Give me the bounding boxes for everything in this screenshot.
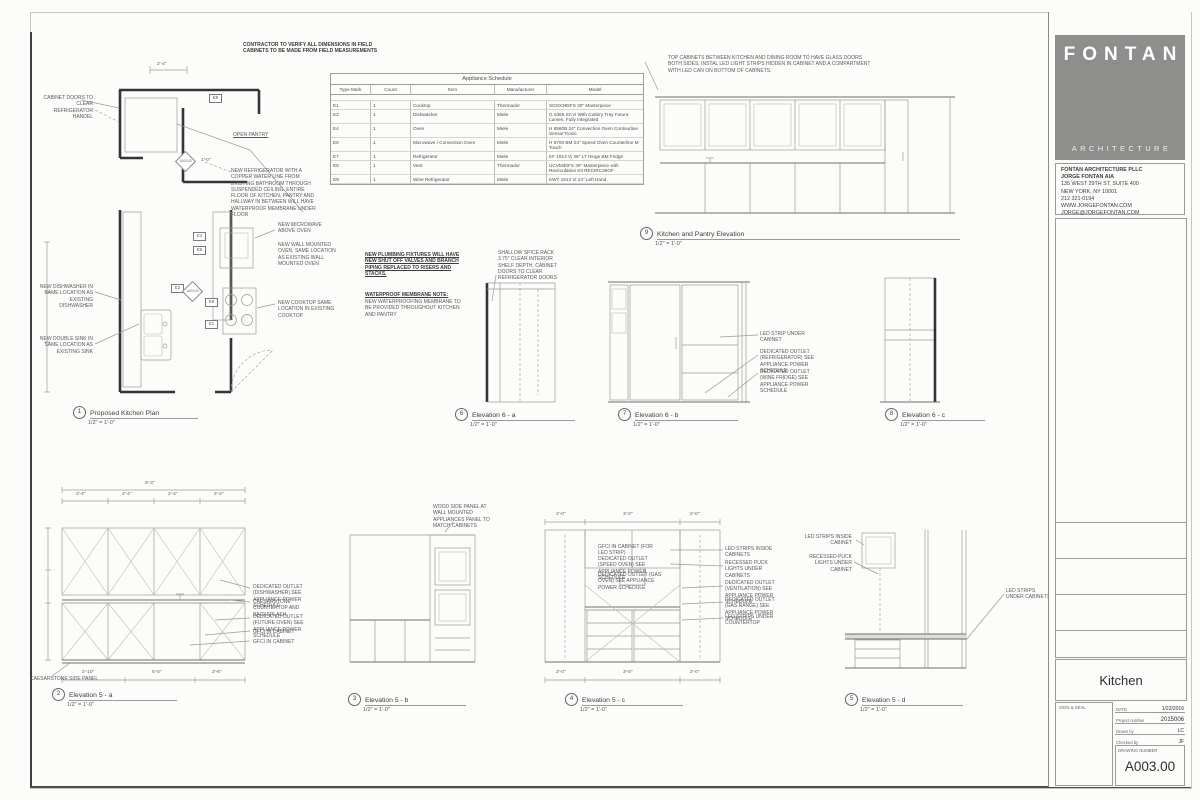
schedule-cell: KF 1913 Vi 36" LT Hinge BM Fridge xyxy=(547,152,643,161)
note-gfci-led: GFCI IN CABINET (FOR LED STRIP) xyxy=(598,544,662,557)
appliance-schedule: Appliance Schedule Type Mark Count Item … xyxy=(330,73,644,185)
schedule-cell: Microwave / Convection Oven xyxy=(411,138,495,152)
dim-bottom: 2'-6" xyxy=(212,670,222,675)
note-outlet-wine: DEDICATED OUTLET (WINE FRIDGE) SEE APPLI… xyxy=(760,369,822,394)
elevation-6c-drawing xyxy=(870,245,995,425)
cooktop-plan xyxy=(223,288,256,334)
schedule-row: E81VentThermadorUCVM30FS 30" Masterpiece… xyxy=(331,161,643,175)
pantry-door xyxy=(885,100,908,213)
schedule-cell: Wine Refrigerator xyxy=(411,175,495,184)
note-gfci-cabinet: GFCI IN CABINET xyxy=(253,639,309,645)
viewport-number: 9 xyxy=(640,227,653,240)
viewport-scale: 1/2" = 1'-0" xyxy=(633,422,738,428)
viewport-elevation-6b: LED STRIP UNDER CABINET DEDICATED OUTLET… xyxy=(600,245,830,430)
note-wood-side-panel: WOOD SIDE PANEL AT WALL MOUNTED APPLIANC… xyxy=(433,504,497,529)
text-line: 135 WEST 29TH ST, SUITE 400 xyxy=(1061,181,1184,188)
schedule-cell: Miele xyxy=(495,175,547,184)
viewport-number: 2 xyxy=(52,688,65,701)
field-project-number: Project number 2015006 xyxy=(1115,713,1185,724)
note-dishwasher: NEW DISHWASHER IN SAME LOCATION AS EXIST… xyxy=(35,284,93,309)
dim-bottom: 3'-0" xyxy=(623,670,633,675)
viewport-elevation-5d: LED STRIPS INSIDE CABINET RECESSED PUCK … xyxy=(790,490,1070,715)
project-number-label: Project number xyxy=(1116,718,1144,723)
revision-divider xyxy=(1056,522,1186,523)
schedule-row: E61Microwave / Convection OvenMieleH 670… xyxy=(331,138,643,152)
viewport-title: Kitchen and Pantry Elevation xyxy=(657,231,960,240)
viewport-title: Elevation 6 - c xyxy=(902,412,985,421)
field-date: DATE 1/22/2016 xyxy=(1115,702,1185,713)
firm-contact-info: FONTAN ARCHITECTURE PLLCJORGE FONTAN AIA… xyxy=(1055,163,1185,215)
dim-bottom: 2'-0" xyxy=(556,670,566,675)
viewport-scale: 1/2" = 1'-0" xyxy=(580,707,683,713)
revision-divider xyxy=(1056,630,1186,631)
dim-bottom: 2'-10" xyxy=(82,670,94,675)
viewport-elevation-5b: WOOD SIDE PANEL AT WALL MOUNTED APPLIANC… xyxy=(335,490,500,715)
schedule-cell: Cooktop xyxy=(411,101,495,110)
upper-cabinet xyxy=(862,533,895,568)
viewport-elevation-6a: SHALLOW SPICE RACK 3.75" CLEAR INTERIOR … xyxy=(450,245,590,430)
schedule-cell: 1 xyxy=(371,161,411,175)
pantry-elevation-drawing xyxy=(640,80,970,230)
schedule-cell: 1 xyxy=(371,110,411,124)
dim-top: 2'-0" xyxy=(690,512,700,517)
dim-bottom: 2'-0" xyxy=(690,670,700,675)
schedule-cell: H 6560B 24" Convection Oven Contourline … xyxy=(547,124,643,138)
drawing-number-label: DRAWING NUMBER xyxy=(1116,746,1184,753)
schedule-cell: 1 xyxy=(371,138,411,152)
field-drawn-by: Drawn by LC xyxy=(1115,724,1185,735)
speed-oven-elevation xyxy=(435,590,470,625)
tag-e4: E4 xyxy=(193,232,206,241)
viewport-number: 5 xyxy=(845,693,858,706)
note-led-inside: LED STRIPS INSIDE CABINETS xyxy=(725,546,780,559)
drawing-number-value: A003.00 xyxy=(1116,759,1184,774)
schedule-cell: 1 xyxy=(371,152,411,161)
viewport-scale: 1/2" = 1'-0" xyxy=(88,420,198,426)
note-outlet-future-oven: DEDICATED OUTLET (FUTURE OVEN) SEE APPLI… xyxy=(253,614,323,639)
viewport-number: 1 xyxy=(73,406,86,419)
left-counter-plan xyxy=(123,212,141,387)
dim-segment: 2'-4" xyxy=(168,492,178,497)
viewport-scale: 1/2" = 1'-0" xyxy=(860,707,963,713)
schedule-cell: H 6700 BM 24" Speed Oven Counterline M T… xyxy=(547,138,643,152)
tag-e9: E9 xyxy=(209,94,222,103)
viewport-elevation-5a: 9'-3" 2'-4" 2'-4" 2'-4" 2'-4" 2'-10" 5'-… xyxy=(30,480,375,710)
schedule-cell: UCVM30FS 30" Masterpiece with Recirculat… xyxy=(547,161,643,175)
note-open-pantry: OPEN PANTRY xyxy=(233,132,283,138)
col-manufacturer: Manufacturer xyxy=(495,85,547,95)
revision-divider xyxy=(1056,558,1186,559)
note-cabinet-doors: CABINET DOORS TO CLEAR REFRIGERATOR HAND… xyxy=(37,95,93,120)
viewport-elevation-6c: 8 Elevation 6 - c 1/2" = 1'-0" xyxy=(870,245,995,430)
dim-top: 2'-0" xyxy=(556,512,566,517)
drawing-number-box: DRAWING NUMBER A003.00 xyxy=(1115,745,1185,786)
viewport-elevation-5c: 2'-0" 3'-0" 2'-0" 2'-0" 3'-0" 2'-0" GFCI… xyxy=(520,490,785,715)
wall-oven-elevation xyxy=(435,548,470,585)
dim-segment: 2'-4" xyxy=(76,492,86,497)
schedule-row: E21DishwasherMieleG 6365 SCVi With Cutle… xyxy=(331,110,643,124)
refrigerator-plan xyxy=(125,98,177,152)
note-spice-rack: SHALLOW SPICE RACK 3.75" CLEAR INTERIOR … xyxy=(498,250,562,281)
text-line: NEW YORK, NY 10001 xyxy=(1061,189,1184,196)
schedule-cell: 1 xyxy=(371,124,411,138)
viewport-scale: 1/2" = 1'-0" xyxy=(363,707,466,713)
viewport-title: Proposed Kitchen Plan xyxy=(90,410,198,419)
drawing-sheet: CONTRACTOR TO VERIFY ALL DIMENSIONS IN F… xyxy=(0,0,1200,800)
schedule-body: E11CooktopThermadorSGSX365FS 30" Masterp… xyxy=(331,101,643,184)
schedule-row: E41OvenMieleH 6560B 24" Convection Oven … xyxy=(331,124,643,138)
schedule-cell: Thermador xyxy=(495,101,547,110)
text-line: 212 321-0194 xyxy=(1061,196,1184,203)
sign-seal-label: SIGN & SEAL xyxy=(1059,705,1086,710)
viewport-scale: 1/2" = 1'-0" xyxy=(470,422,575,428)
viewport-title: Elevation 5 - a xyxy=(69,692,177,701)
project-number-value: 2015006 xyxy=(1161,717,1184,723)
text-line: JORGE@JORGEFONTAN.COM xyxy=(1061,210,1184,217)
schedule-cell: Vent xyxy=(411,161,495,175)
schedule-row: E11CooktopThermadorSGSX365FS 30" Masterp… xyxy=(331,101,643,110)
date-label: DATE xyxy=(1116,707,1127,712)
text-line: FONTAN ARCHITECTURE PLLC xyxy=(1061,167,1184,174)
double-sink-plan xyxy=(141,310,171,360)
note-caesarstone-side: CAESARSTONE SIDE PANEL xyxy=(30,676,100,682)
schedule-cell: Miele xyxy=(495,124,547,138)
sheet-bottom-edge xyxy=(30,786,1191,788)
col-count: Count xyxy=(371,85,411,95)
viewport-title: Elevation 5 - d xyxy=(862,697,963,706)
schedule-cell: 1 xyxy=(371,175,411,184)
plan-dim-top: 2'-4" xyxy=(157,62,167,67)
note-cooktop: NEW COOKTOP SAME LOCATION IN EXISTING CO… xyxy=(278,300,340,319)
schedule-cell: Refrigerator xyxy=(411,152,495,161)
viewport-pantry-elevation: 9 Kitchen and Pantry Elevation 1/2" = 1'… xyxy=(640,80,970,245)
revision-divider xyxy=(1056,594,1186,595)
title-block-fields: DATE 1/22/2016 Project number 2015006 Dr… xyxy=(1115,702,1185,746)
logo-subtext: ARCHITECTURE xyxy=(1069,144,1172,160)
dim-segment: 2'-4" xyxy=(214,492,224,497)
general-note: CONTRACTOR TO VERIFY ALL DIMENSIONS IN F… xyxy=(243,42,383,55)
sheet-title: Kitchen xyxy=(1055,659,1187,701)
text-line: JORGE FONTAN AIA xyxy=(1061,174,1184,181)
schedule-cell: SGSX365FS 30" Masterpiece xyxy=(547,101,643,110)
firm-logo: FONTAN ARCHITECTURE xyxy=(1055,35,1185,160)
date-value: 1/22/2016 xyxy=(1162,706,1184,712)
base-cabinet xyxy=(855,640,900,668)
schedule-cell: Miele xyxy=(495,110,547,124)
viewport-number: 4 xyxy=(565,693,578,706)
schedule-cell: 1 xyxy=(371,101,411,110)
viewport-number: 7 xyxy=(618,408,631,421)
note-led-countertop: LED STRIPS UNDER COUNTERTOP xyxy=(725,614,780,627)
col-model: Model xyxy=(547,85,643,95)
plan-dim-pantry: 1'-0" xyxy=(201,158,211,163)
title-block: FONTAN ARCHITECTURE FONTAN ARCHITECTURE … xyxy=(1048,12,1191,787)
dim-overall: 9'-3" xyxy=(145,481,155,486)
note-puck-lights-cabinet: RECESSED PUCK LIGHTS UNDER CABINET xyxy=(798,554,852,573)
viewport-number: 6 xyxy=(455,408,468,421)
schedule-row: E71RefrigeratorMieleKF 1913 Vi 36" LT Hi… xyxy=(331,152,643,161)
note-outlet-gas-oven: DEDICATED OUTLET (GAS OVEN) SEE APPLIANC… xyxy=(598,572,662,591)
tag-e1: E1 xyxy=(205,320,218,329)
schedule-cell: Dishwasher xyxy=(411,110,495,124)
revision-block xyxy=(1055,218,1187,658)
note-gfci-cabinet: GFCI IN CABINET xyxy=(253,629,309,635)
tag-e8: E8 xyxy=(205,298,218,307)
schedule-cell: Miele xyxy=(495,138,547,152)
col-item: Item xyxy=(411,85,495,95)
schedule-cell: Oven xyxy=(411,124,495,138)
sheet-title-text: Kitchen xyxy=(1099,673,1142,688)
note-led-under-cabinets: LED STRIPS UNDER CABINETS xyxy=(1006,588,1052,601)
drawn-by-label: Drawn by xyxy=(1116,729,1134,734)
viewport-title: Elevation 6 - b xyxy=(635,412,738,421)
note-puck-lights: RECESSED PUCK LIGHTS UNDER CABINETS xyxy=(725,560,780,579)
viewport-number: 8 xyxy=(885,408,898,421)
viewport-title: Elevation 6 - a xyxy=(472,412,575,421)
schedule-cell: Miele xyxy=(495,152,547,161)
viewport-title: Elevation 5 - c xyxy=(582,697,683,706)
logo-text: FONTAN xyxy=(1057,35,1184,66)
schedule-cell: Thermador xyxy=(495,161,547,175)
tag-e6: E6 xyxy=(193,246,206,255)
schedule-cell: G 6365 SCVi With Cutlery Tray Futura Lum… xyxy=(547,110,643,124)
note-led-inside-cabinet: LED STRIPS INSIDE CABINET xyxy=(804,534,852,547)
schedule-row: E91Wine RefrigeratorMieleKWT 1613 Vi 24"… xyxy=(331,175,643,184)
viewport-kitchen-plan: 2'-4" 1'-0" CABINET DOORS TO CLEAR REFRI… xyxy=(35,62,375,424)
dim-segment: 2'-4" xyxy=(122,492,132,497)
dim-top: 3'-0" xyxy=(623,512,633,517)
schedule-title: Appliance Schedule xyxy=(331,74,643,85)
schedule-header: Type Mark Count Item Manufacturer Model xyxy=(331,85,643,95)
viewport-number: 3 xyxy=(348,693,361,706)
note-wall-oven: NEW WALL MOUNTED OVEN, SAME LOCATION AS … xyxy=(278,242,340,267)
note-led-strip: LED STRIP UNDER CABINET xyxy=(760,331,818,344)
viewport-scale: 1/2" = 1'-0" xyxy=(67,702,177,708)
viewport-title: Elevation 5 - b xyxy=(365,697,466,706)
glass-cabinet-note: TOP CABINETS BETWEEN KITCHEN AND DINING … xyxy=(668,55,873,74)
schedule-cell: KWT 1613 Vi 24" Left Hand xyxy=(547,175,643,184)
viewport-scale: 1/2" = 1'-0" xyxy=(900,422,985,428)
drawn-by-value: LC xyxy=(1178,728,1184,734)
note-double-sink: NEW DOUBLE SINK IN SAME LOCATION AS EXIS… xyxy=(35,336,93,355)
faucet-glyph xyxy=(706,158,714,163)
note-microwave: NEW MICROWAVE ABOVE OVEN xyxy=(278,222,340,235)
note-new-refrigerator: NEW REFRIGERATOR WITH A COPPER WATER LIN… xyxy=(231,168,323,218)
dim-bottom: 5'-0" xyxy=(152,670,162,675)
text-line: WWW.JORGEFONTAN.COM xyxy=(1061,203,1184,210)
refrigerator-elevation xyxy=(630,285,680,400)
sign-seal-box: SIGN & SEAL xyxy=(1055,702,1113,786)
